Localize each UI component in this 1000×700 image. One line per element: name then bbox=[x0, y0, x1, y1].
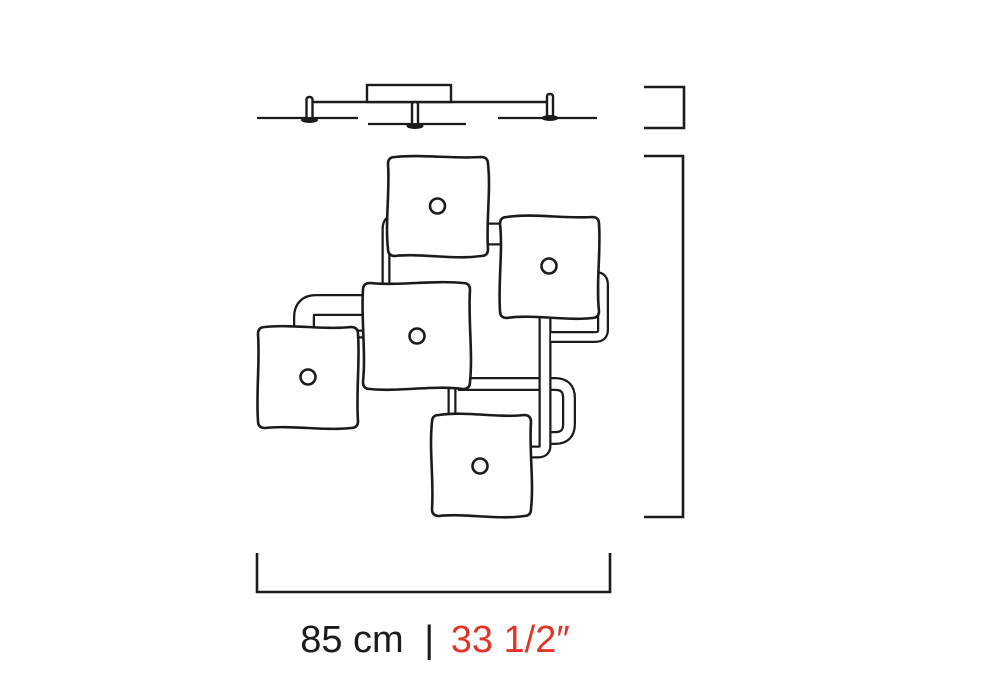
fixture-width-metric-label: 85 cm bbox=[300, 619, 403, 661]
mount-post-center bbox=[412, 102, 418, 125]
post-foot-left bbox=[301, 117, 318, 123]
shade-knob bbox=[473, 459, 488, 474]
post-foot-center bbox=[407, 123, 424, 129]
canopy-plate bbox=[367, 85, 451, 102]
fixture-width-separator: | bbox=[424, 619, 434, 661]
shade-knob bbox=[430, 199, 445, 214]
ceiling-mount-top-view bbox=[257, 85, 597, 129]
dimension-diagram-svg: 10 cm 4″ 88 cm | 34 1/2″ 85 cm | 33 1/2″ bbox=[0, 0, 1000, 700]
shade-knob bbox=[301, 370, 316, 385]
mount-post-left bbox=[307, 97, 313, 119]
dimension-bracket-fixture-height bbox=[644, 156, 683, 517]
fixture-width-label: 85 cm | 33 1/2″ bbox=[300, 619, 570, 661]
post-foot-right bbox=[542, 115, 559, 121]
shade-knob bbox=[542, 259, 557, 274]
dimension-diagram-page: 10 cm 4″ 88 cm | 34 1/2″ 85 cm | 33 1/2″ bbox=[0, 0, 1000, 700]
dimension-bracket-canopy-height bbox=[644, 87, 684, 128]
dimension-bracket-fixture-width bbox=[257, 553, 610, 592]
mount-post-right bbox=[547, 94, 553, 117]
fixture-width-imperial-label: 33 1/2″ bbox=[451, 619, 570, 661]
shade-knob bbox=[410, 329, 425, 344]
